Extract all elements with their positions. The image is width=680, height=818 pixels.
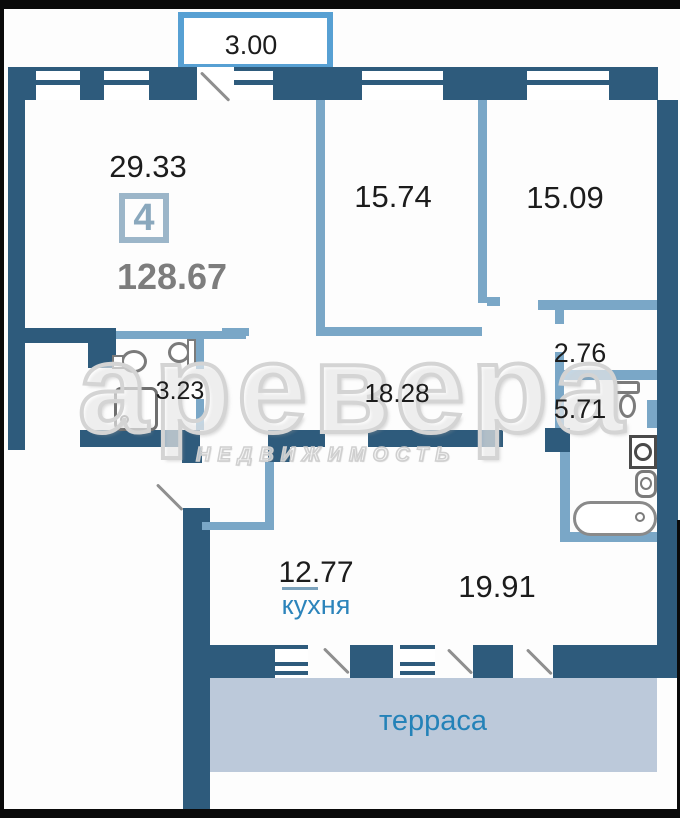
partition-kitchen-vertical [265, 462, 274, 530]
window [104, 67, 149, 100]
wardrobe-area-label: 2.76 [554, 339, 607, 369]
terrace-label: терраса [379, 706, 487, 738]
partition-room-main-bedroom [316, 100, 325, 336]
balcony-area-label: 3.00 [225, 31, 278, 61]
bathtub-drain-icon [635, 512, 645, 522]
partition-bath-inner [647, 400, 657, 428]
window [527, 67, 609, 100]
partition-wardrobe-top [538, 300, 657, 310]
kitchen-area-label: 12.77 [278, 556, 353, 589]
kitchen-name-label: кухня [282, 591, 351, 621]
floor-plan: аревера НЕДВИЖИМОСТЬ 3.00 29.33 4 128.67… [0, 0, 680, 818]
wall-left [8, 100, 25, 450]
frame-top [0, 0, 680, 9]
window [234, 67, 273, 100]
window [36, 67, 80, 100]
wall-right [657, 100, 678, 675]
window [275, 645, 308, 678]
total-area-label: 128.67 [117, 257, 227, 297]
wall-bottom-a [200, 645, 275, 678]
window [400, 645, 435, 678]
washing-machine-drum-icon [634, 443, 652, 461]
room-main-area-label: 29.33 [109, 150, 187, 184]
bedroom-left-area-label: 15.74 [354, 180, 432, 214]
bathroom-large-area-label: 5.71 [554, 395, 607, 425]
wall-bottom-b [350, 645, 393, 678]
frame-left [0, 0, 4, 818]
watermark-subtitle: НЕДВИЖИМОСТЬ [196, 444, 456, 467]
door-swing-icon [526, 648, 553, 675]
partition-stub [487, 297, 500, 306]
bedroom-right-area-label: 15.09 [526, 181, 604, 215]
partition-bedrooms [478, 100, 487, 303]
sink-basin-icon [640, 477, 652, 490]
wall-bottom-d [553, 645, 678, 678]
door-swing-icon [447, 648, 473, 674]
partition-kitchen-horizontal [202, 522, 274, 530]
partition-bath-left [560, 452, 570, 542]
window [362, 67, 443, 100]
bathroom-small-area-label: 3.23 [156, 378, 205, 406]
rooms-count-badge: 4 [119, 193, 169, 243]
door-swing-icon [156, 483, 184, 511]
frame-bottom [0, 809, 680, 818]
wall-bottom-c [473, 645, 513, 678]
door-swing-icon [323, 647, 350, 674]
living-dining-area-label: 19.91 [458, 570, 536, 604]
hallway-area-label: 18.28 [364, 379, 429, 408]
